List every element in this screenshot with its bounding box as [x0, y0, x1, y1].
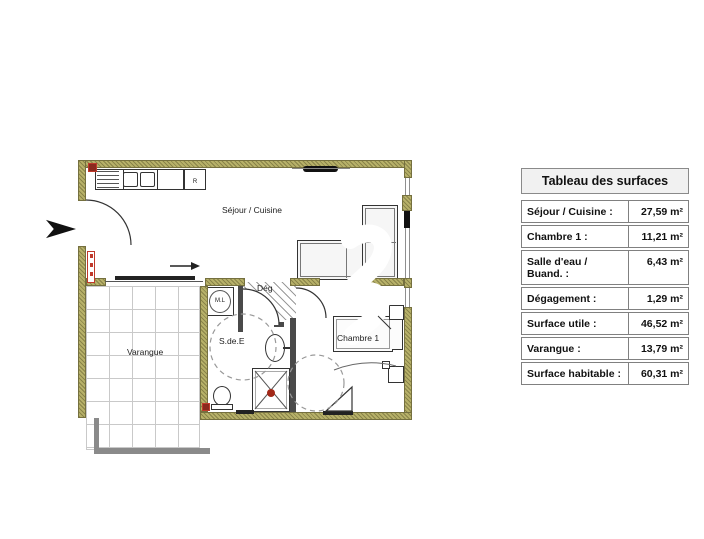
table-row: Varangue : 13,79 m²: [521, 337, 689, 360]
turning-circle-chambre: [288, 355, 344, 411]
varangue-railing-left: [94, 418, 99, 452]
wall-top: [78, 160, 412, 168]
row-value: 11,21 m²: [628, 226, 688, 247]
wall-right-a: [404, 160, 412, 178]
surface-table-rows: Séjour / Cuisine : 27,59 m² Chambre 1 : …: [521, 200, 689, 385]
table-row: Séjour / Cuisine : 27,59 m²: [521, 200, 689, 223]
wall-bottom: [200, 412, 412, 420]
table-row: Surface utile : 46,52 m²: [521, 312, 689, 335]
surface-table-title: Tableau des surfaces: [521, 168, 689, 194]
table-row: Salle d'eau / Buand. : 6,43 m²: [521, 250, 689, 285]
row-label: Varangue :: [522, 338, 628, 359]
red-marker-wall-left: [87, 251, 95, 283]
wall-partition-a: [205, 278, 245, 286]
row-value: 60,31 m²: [628, 363, 688, 384]
wall-sde-chambre: [290, 318, 296, 412]
red-marker-top-left: [88, 163, 97, 172]
label-deg: Dég: [257, 283, 273, 293]
row-value: 6,43 m²: [628, 251, 688, 284]
door-jamb-sde: [274, 322, 284, 327]
nightstand: [389, 305, 404, 320]
row-value: 1,29 m²: [628, 288, 688, 309]
varangue-tile-floor: [86, 286, 200, 450]
bathroom-sink: [265, 334, 285, 362]
shower: [252, 368, 290, 412]
desk: [388, 366, 404, 383]
table-row: Dégagement : 1,29 m²: [521, 287, 689, 310]
label-varangue: Varangue: [127, 347, 163, 357]
wall-partition-b: [290, 278, 320, 286]
desk-side: [382, 361, 390, 369]
kitchen-sink-right: [140, 172, 155, 187]
window-right-3: [405, 288, 410, 307]
threshold-bathroom: [236, 410, 254, 414]
kitchen-sink-left: [123, 172, 138, 187]
wall-left-lower: [78, 246, 86, 418]
table-row: Chambre 1 : 11,21 m²: [521, 225, 689, 248]
sliding-door-leaf: [115, 276, 195, 280]
sliding-door-track: [105, 281, 203, 282]
varangue-railing-bottom: [94, 448, 210, 454]
row-value: 46,52 m²: [628, 313, 688, 334]
row-label: Dégagement :: [522, 288, 628, 309]
wall-right-c: [404, 278, 412, 288]
window-top-icon: [303, 166, 338, 172]
wall-partition-c: [367, 278, 404, 286]
window-right-1: [405, 178, 410, 195]
wall-right-b: [402, 195, 412, 211]
wall-right-d: [404, 307, 412, 420]
sofa-chaise: [362, 205, 398, 280]
chambre-door-leaf: [326, 387, 352, 411]
row-label: Surface utile :: [522, 313, 628, 334]
window-right-2: [405, 228, 410, 278]
chambre-door-arc: [296, 288, 326, 318]
wall-left-upper: [78, 160, 86, 201]
row-value: 27,59 m²: [628, 201, 688, 222]
red-marker-bathroom: [202, 403, 210, 411]
bed-frame: [392, 318, 403, 350]
row-value: 13,79 m²: [628, 338, 688, 359]
row-label: Séjour / Cuisine :: [522, 201, 628, 222]
row-label: Salle d'eau / Buand. :: [522, 251, 628, 284]
entrance-arrow-icon: [46, 217, 76, 241]
kitchen-drainer: [97, 171, 119, 188]
fridge-label: R: [193, 179, 197, 185]
toilet-base: [211, 404, 233, 410]
surface-table: Tableau des surfaces Séjour / Cuisine : …: [521, 168, 689, 387]
threshold-chambre: [323, 411, 353, 415]
toilet-bowl: [213, 386, 231, 406]
label-sde: S.de.E: [219, 336, 245, 346]
label-sejour-cuisine: Séjour / Cuisine: [222, 205, 282, 215]
sliding-arrow-head: [191, 262, 200, 270]
window-right-icon: [404, 211, 410, 228]
table-row: Surface habitable : 60,31 m²: [521, 362, 689, 385]
washing-machine: M.L: [206, 287, 234, 316]
row-label: Chambre 1 :: [522, 226, 628, 247]
washing-machine-label: M.L: [207, 298, 233, 304]
floor-plan-page: R M.L: [0, 0, 704, 539]
wall-deg-west: [238, 286, 243, 332]
window-top-sill: [292, 168, 350, 169]
row-label: Surface habitable :: [522, 363, 628, 384]
label-chambre: Chambre 1: [337, 333, 379, 343]
fridge: R: [184, 169, 206, 190]
entrance-door-arc: [86, 200, 131, 245]
wall-varangue-right: [200, 286, 208, 412]
